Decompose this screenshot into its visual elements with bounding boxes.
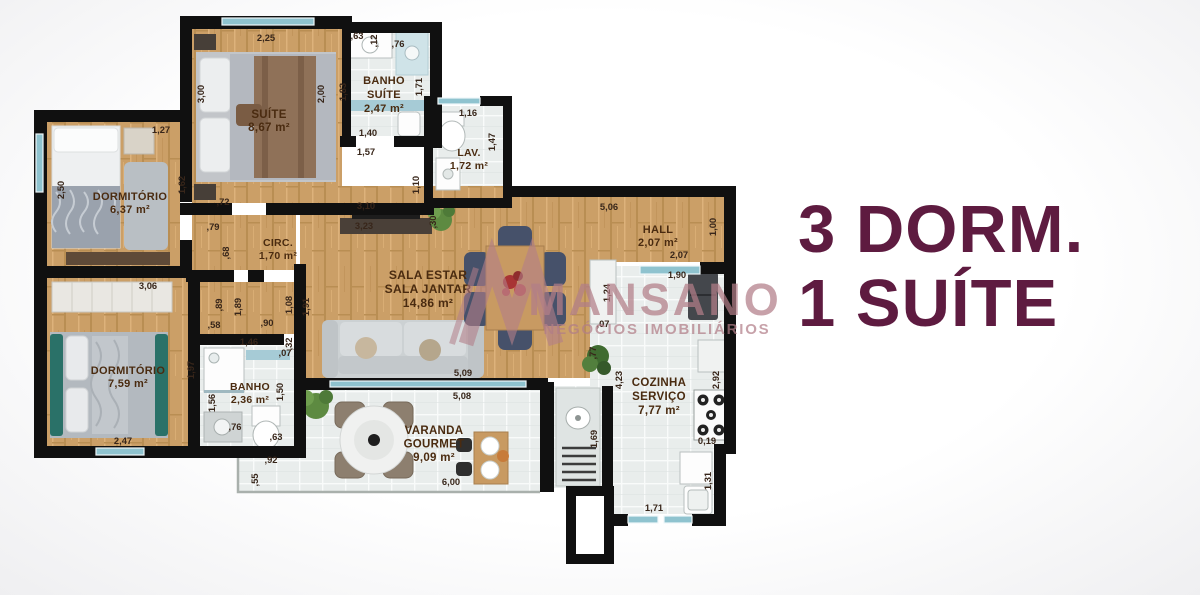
room-label-cozinha-servico: SERVIÇO [632,391,686,403]
dimension-label: 1,16 [459,107,477,118]
dimension-label: 2,25 [257,32,275,43]
title-line-1: 3 DORM. [798,192,1084,267]
room-label-dormitorio-2: 7,59 m² [108,378,148,390]
watermark-name: MANSANO [528,274,782,325]
dimension-label: 1,31 [702,472,713,490]
dimension-label: ,12 [368,34,379,47]
watermark-tagline: NEGÓCIOS IMOBILIÁRIOS [544,320,771,338]
dimension-label: 1,97 [185,361,196,379]
dimension-label: 3,23 [355,220,373,231]
room-label-sala: 14,86 m² [403,296,453,310]
room-label-suite: SUÍTE [251,108,286,121]
room-label-circulacao: 1,70 m² [259,250,297,262]
dimension-label: 1,00 [707,218,718,236]
floorplan-page: SUÍTE8,67 m²BANHOSUÍTE2,47 m²LAV.1,72 m²… [0,0,1200,595]
dimension-label: ,63 [269,431,282,442]
dimension-label: 2,07 [670,249,688,260]
dimension-label: 1,89 [232,298,243,316]
room-label-sala: SALA JANTAR [385,282,472,296]
room-label-hall: 2,07 m² [638,237,678,249]
dimension-label: 3,00 [195,85,206,103]
room-label-varanda-gourmet: 9,09 m² [413,452,455,464]
dimension-label: ,63 [350,30,363,41]
room-label-lavabo: 1,72 m² [450,160,488,172]
dimension-label: 2,50 [55,181,66,199]
dimension-label: ,77 [587,346,598,359]
room-label-cozinha-servico: 7,77 m² [638,405,680,417]
dimension-label: 2,00 [315,85,326,103]
dormitorio2-furniture [50,282,172,438]
dimension-label: 4,23 [613,371,624,389]
dimension-label: 1,57 [357,146,375,157]
dimension-label: 1,46 [240,336,258,347]
room-label-dormitorio-1: DORMITÓRIO [93,190,168,203]
room-label-varanda-gourmet: VARANDA [405,425,464,437]
room-label-circulacao: CIRC. [263,237,293,249]
room-label-banho: BANHO [230,381,270,393]
dimension-label: 1,71 [413,78,424,96]
dimension-label: ,07 [278,347,291,358]
dimension-label: 5,09 [454,367,472,378]
dimension-label: 3,06 [139,280,157,291]
dimension-label: 1,83 [337,83,348,101]
room-label-banho-suite: 2,47 m² [364,103,404,115]
dimension-label: 1,47 [486,133,497,151]
dimension-label: ,72 [216,196,229,207]
dimension-label: 1,91 [300,298,311,316]
dimension-label: 0,19 [698,435,716,446]
room-label-hall: HALL [643,224,674,236]
dimension-label: 1,69 [588,430,599,448]
dimension-label: ,55 [249,473,260,486]
dimension-label: ,30 [427,215,438,228]
plan-title: 3 DORM. 1 SUÍTE [798,192,1084,341]
dimension-label: ,79 [206,221,219,232]
dimension-label: ,58 [207,319,220,330]
dimension-label: 5,08 [453,390,471,401]
room-label-cozinha-servico: COZINHA [632,377,687,389]
dimension-label: 1,50 [274,383,285,401]
dimension-label: 1,71 [645,502,663,513]
dimension-label: ,68 [220,246,231,259]
room-label-suite: 8,67 m² [248,122,290,134]
title-line-2: 1 SUÍTE [798,266,1058,341]
dimension-label: ,89 [213,298,224,311]
dimension-label: 1,08 [283,296,294,314]
dimension-label: 5,06 [600,201,618,212]
dimension-label: ,76 [391,38,404,49]
floorplan: SUÍTE8,67 m²BANHOSUÍTE2,47 m²LAV.1,72 m²… [0,0,1200,595]
dimension-label: 6,00 [442,476,460,487]
room-label-varanda-gourmet: GOURMET [404,439,465,451]
dimension-label: ,90 [260,317,273,328]
dimension-label: 1,56 [206,394,217,412]
dimension-label: 1,27 [152,124,170,135]
room-label-dormitorio-2: DORMITÓRIO [91,364,166,377]
dimension-label: ,92 [264,454,277,465]
room-label-sala: SALA ESTAR [389,268,467,282]
stove [694,390,726,440]
dimension-label: 3,10 [357,200,375,211]
room-label-banho: 2,36 m² [231,394,269,406]
dimension-label: 2,47 [114,435,132,446]
room-label-lavabo: LAV. [457,147,480,159]
room-label-banho-suite: BANHO [363,75,405,87]
room-label-dormitorio-1: 6,37 m² [110,204,150,216]
room-label-banho-suite: SUÍTE [367,88,401,101]
dimension-label: 1,62 [176,176,187,194]
dimension-label: ,76 [228,421,241,432]
dimension-label: 2,92 [710,371,721,389]
dimension-label: 1,40 [359,127,377,138]
dimension-label: 1,10 [410,176,421,194]
